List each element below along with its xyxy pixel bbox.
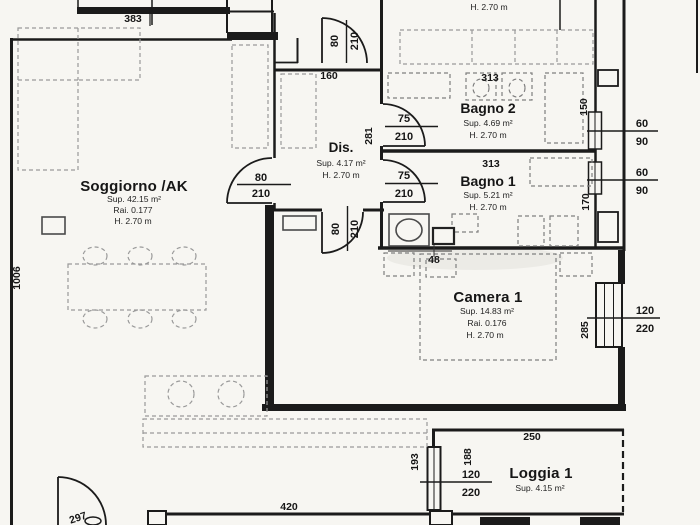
bagno1-door-height: 210 xyxy=(395,188,413,200)
exterior-walls xyxy=(10,0,697,525)
soggiorno-door-width: 80 xyxy=(255,172,267,184)
bagno1-height: H. 2.70 m xyxy=(469,202,506,212)
bagno1-door-width: 75 xyxy=(398,170,410,182)
dining-set xyxy=(68,247,206,328)
camera1-area: Sup. 14.83 m² xyxy=(460,306,514,316)
soggiorno-height: H. 2.70 m xyxy=(114,216,151,226)
dis-name: Dis. xyxy=(329,140,354,155)
wardrobe-soggiorno xyxy=(232,45,268,148)
side-table xyxy=(283,216,316,230)
dis-area: Sup. 4.17 m² xyxy=(316,158,365,168)
dis-height: H. 2.70 m xyxy=(322,170,359,180)
camera1-ratio: Rai. 0.176 xyxy=(467,318,506,328)
bagno1-name: Bagno 1 xyxy=(460,173,515,189)
camera-window-width: 120 xyxy=(636,305,654,317)
bagno2-area: Sup. 4.69 m² xyxy=(463,118,512,128)
loggia1-area: Sup. 4.15 m² xyxy=(515,483,564,493)
bagno2-window-width: 60 xyxy=(636,118,648,130)
camera-window-height: 220 xyxy=(636,323,654,335)
loggia-window-height: 220 xyxy=(462,487,480,499)
soggiorno-door-height: 210 xyxy=(252,188,270,200)
dim-48: 48 xyxy=(428,254,440,266)
dim-250: 250 xyxy=(523,431,541,443)
top-edge-walls xyxy=(77,0,278,40)
wardrobe-top-room xyxy=(400,30,593,64)
dim-150: 150 xyxy=(578,98,590,116)
dim-1006: 1006 xyxy=(11,266,23,290)
dim-193: 193 xyxy=(409,453,421,471)
wardrobe-dis xyxy=(281,74,316,148)
bagno1-area: Sup. 5.21 m² xyxy=(463,190,512,200)
bagno2-name: Bagno 2 xyxy=(460,100,515,116)
dim-281: 281 xyxy=(363,127,375,145)
camera1-height: H. 2.70 m xyxy=(466,330,503,340)
bagno2-window-height: 90 xyxy=(636,136,648,148)
dim-160: 160 xyxy=(320,70,338,82)
camera-door-height: 210 xyxy=(349,220,361,238)
bagno2-height: H. 2.70 m xyxy=(469,130,506,140)
loggia1-name: Loggia 1 xyxy=(509,465,572,482)
small-cabinet xyxy=(433,228,454,244)
bagno1-window-width: 60 xyxy=(636,167,648,179)
interior-walls xyxy=(270,0,624,248)
bagno2-door-width: 75 xyxy=(398,113,410,125)
dim-188: 188 xyxy=(462,448,474,466)
floorplan-page: H. 2.70 m Soggiorno /AK Sup. 42.15 m² Ra… xyxy=(0,0,700,525)
kitchen-counter xyxy=(143,376,427,447)
window-bagno1 xyxy=(589,162,602,194)
dim-313-bagno1: 313 xyxy=(482,158,500,170)
sofa xyxy=(18,28,140,170)
dim-285: 285 xyxy=(579,321,591,339)
bagno2-door-height: 210 xyxy=(395,131,413,143)
dim-383: 383 xyxy=(124,13,142,25)
camera1-name: Camera 1 xyxy=(453,289,522,306)
window-camera xyxy=(596,283,622,347)
soggiorno-ratio: Rai. 0.177 xyxy=(113,205,152,215)
bagno1-window-height: 90 xyxy=(636,185,648,197)
soggiorno-name: Soggiorno /AK xyxy=(80,178,188,195)
floorplan-canvas: H. 2.70 m Soggiorno /AK Sup. 42.15 m² Ra… xyxy=(0,0,700,525)
dim-420: 420 xyxy=(280,501,298,513)
dim-313-bagno2: 313 xyxy=(481,72,499,84)
dim-170: 170 xyxy=(580,193,592,211)
stool xyxy=(42,217,65,234)
camera-door-width: 80 xyxy=(330,223,342,235)
window-loggia xyxy=(428,447,441,510)
entry-door-width: 80 xyxy=(329,35,341,47)
soggiorno-area: Sup. 42.15 m² xyxy=(107,194,161,204)
loggia-window-width: 120 xyxy=(462,469,480,481)
top-room-height: H. 2.70 m xyxy=(470,2,507,12)
entry-door-height: 210 xyxy=(349,32,361,50)
